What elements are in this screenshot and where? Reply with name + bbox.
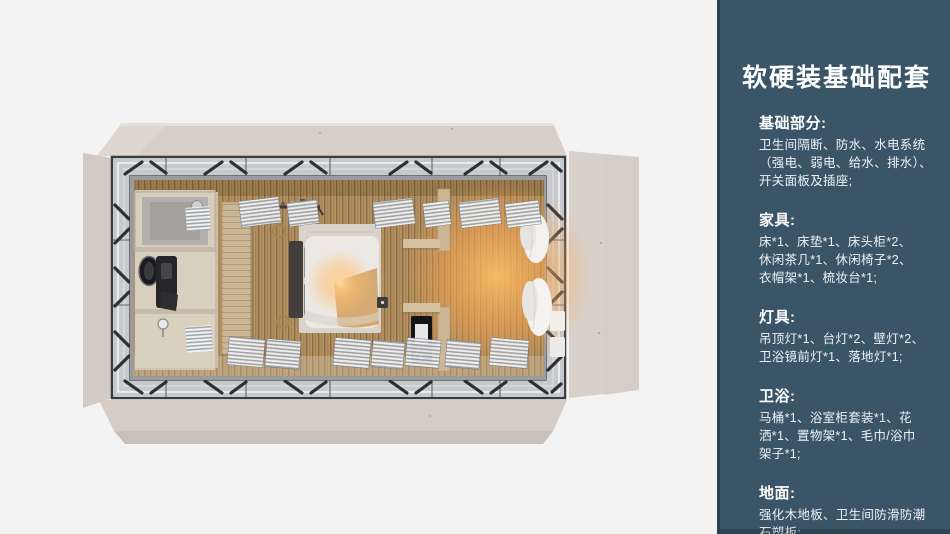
section-line: 吊顶灯*1、台灯*2、壁灯*2、 [759, 330, 936, 348]
sidebar-title: 软硬装基础配套 [742, 63, 936, 93]
floorplan-render [0, 0, 717, 534]
section-line: 卫生间隔断、防水、水电系统 [759, 136, 936, 154]
sidebar-section: 灯具:吊顶灯*1、台灯*2、壁灯*2、卫浴镜前灯*1、落地灯*1; [759, 308, 936, 366]
linen-stack [550, 311, 565, 331]
sidebar-section: 卫浴:马桶*1、浴室柜套装*1、花洒*1、置物架*1、毛巾/浴巾架子*1; [759, 387, 936, 463]
slide: 软硬装基础配套 基础部分:卫生间隔断、防水、水电系统（强电、弱电、给水、排水）、… [0, 0, 950, 534]
section-line: 架子*1; [759, 445, 936, 463]
section-title: 卫浴: [759, 387, 936, 407]
sidebar-sections: 基础部分:卫生间隔断、防水、水电系统（强电、弱电、给水、排水）、开关面板及插座;… [759, 114, 936, 534]
wall-shelf [403, 239, 440, 248]
section-line: 强化木地板、卫生间防滑防潮 [759, 506, 936, 524]
sidebar-section: 家具:床*1、床垫*1、床头柜*2、休闲茶几*1、休闲椅子*2、衣帽架*1、梳妆… [759, 211, 936, 287]
section-title: 地面: [759, 484, 936, 504]
section-title: 基础部分: [759, 114, 936, 134]
sidebar-section: 基础部分:卫生间隔断、防水、水电系统（强电、弱电、给水、排水）、开关面板及插座; [759, 114, 936, 190]
section-line: 衣帽架*1、梳妆台*1; [759, 269, 936, 287]
section-title: 家具: [759, 211, 936, 231]
section-line: 洒*1、置物架*1、毛巾/浴巾 [759, 427, 936, 445]
wall-shelf [403, 303, 440, 312]
section-line: 床*1、床垫*1、床头柜*2、 [759, 233, 936, 251]
section-line: 石塑板; [759, 524, 936, 534]
section-line: （强电、弱电、给水、排水）、 [759, 154, 936, 172]
bathroom [135, 190, 218, 370]
floorplan-illustration [0, 0, 717, 534]
section-line: 卫浴镜前灯*1、落地灯*1; [759, 348, 936, 366]
section-line: 开关面板及插座; [759, 172, 936, 190]
headboard [289, 241, 303, 318]
info-sidebar: 软硬装基础配套 基础部分:卫生间隔断、防水、水电系统（强电、弱电、给水、排水）、… [717, 0, 950, 534]
section-line: 休闲茶几*1、休闲椅子*2、 [759, 251, 936, 269]
linen-stack [550, 337, 565, 357]
shower-head [158, 319, 168, 329]
section-title: 灯具: [759, 308, 936, 328]
sidebar-section: 地面:强化木地板、卫生间防滑防潮石塑板; [759, 484, 936, 534]
section-line: 马桶*1、浴室柜套装*1、花 [759, 409, 936, 427]
